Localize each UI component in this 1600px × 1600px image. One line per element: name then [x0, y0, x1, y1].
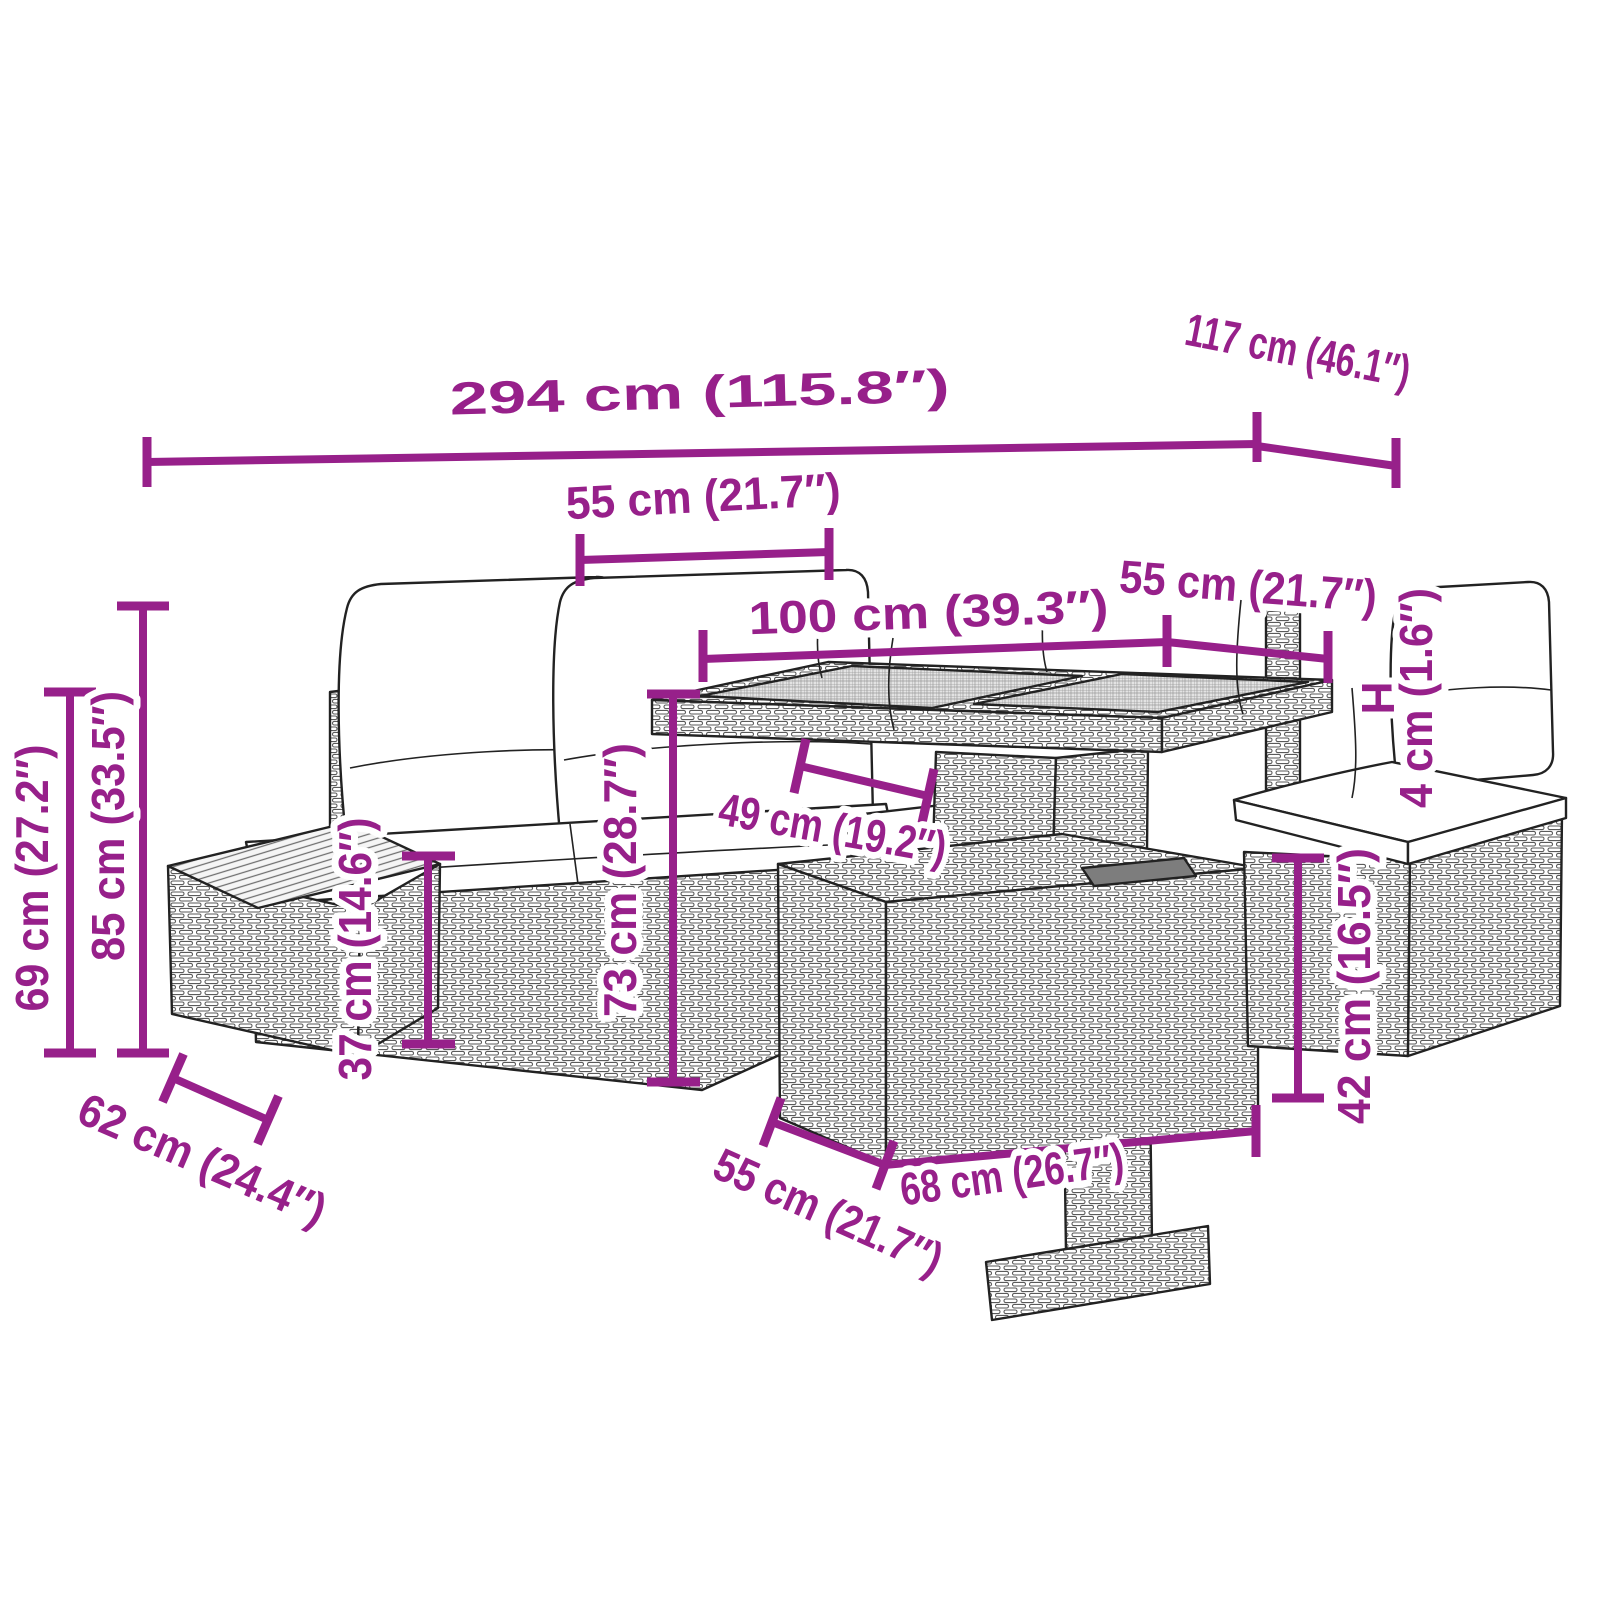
- storage-box-front: [886, 868, 1258, 1164]
- dim-height-69-label: 69 cm (27.2″): [6, 745, 58, 1012]
- dim-seat-width: 55 cm (21.7″): [564, 463, 841, 586]
- dim-table-depth-label: 55 cm (21.7″): [1118, 550, 1379, 622]
- dim-height-85: 85 cm (33.5″): [82, 606, 169, 1053]
- dim-table-depth: 55 cm (21.7″): [1118, 550, 1379, 683]
- dim-tabletop-thickness-label: 4 cm (1.6″): [1390, 588, 1442, 808]
- dimension-diagram: 294 cm (115.8″) 117 cm (46.1″) 55 cm (21…: [0, 0, 1600, 1600]
- dim-height-85-label: 85 cm (33.5″): [82, 691, 134, 961]
- ottoman-box-front: [1244, 852, 1410, 1056]
- dim-total-depth: 117 cm (46.1″): [1181, 303, 1415, 488]
- dim-side-table-depth: 62 cm (24.4″): [71, 1054, 335, 1236]
- dim-total-width: 294 cm (115.8″): [147, 359, 1257, 487]
- dim-seat-width-label: 55 cm (21.7″): [564, 463, 841, 529]
- dim-box-height-label: 42 cm (16.5″): [1328, 848, 1380, 1124]
- dim-total-width-label: 294 cm (115.8″): [449, 359, 950, 424]
- dim-side-table-depth-label: 62 cm (24.4″): [71, 1083, 335, 1236]
- storage-box-left: [778, 864, 886, 1164]
- dim-total-depth-label: 117 cm (46.1″): [1181, 303, 1415, 398]
- dimension-annotations: 294 cm (115.8″) 117 cm (46.1″) 55 cm (21…: [6, 303, 1442, 1285]
- dim-seat-height-label: 37 cm (14.6″): [329, 818, 381, 1081]
- dim-table-height-label: 73 cm (28.7″): [594, 743, 646, 1017]
